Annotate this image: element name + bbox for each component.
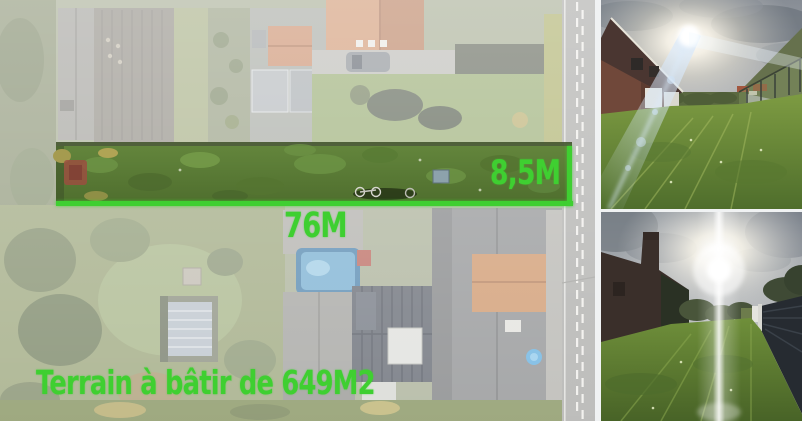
ground-photo-top [601, 0, 802, 209]
plot-width-label: 8,5M [490, 156, 560, 190]
ground-photo-bottom [601, 212, 802, 421]
horizontal-divider [601, 209, 802, 212]
plot-length-label: 76M [284, 209, 347, 244]
ground-photo-top-illustration [601, 0, 802, 209]
plot-object [433, 170, 449, 183]
fence-post [758, 304, 762, 331]
ground-photo-bottom-illustration [601, 212, 802, 421]
chimney [643, 232, 659, 240]
aerial-photo: 8,5M 76M Terrain à bâtir de 649M2 [0, 0, 595, 421]
property-photo-collage: 8,5M 76M Terrain à bâtir de 649M2 [0, 0, 802, 421]
plot-area-label: Terrain à bâtir de 649M2 [36, 366, 375, 399]
width-measure-line [567, 146, 572, 205]
sun-flare [693, 212, 745, 421]
